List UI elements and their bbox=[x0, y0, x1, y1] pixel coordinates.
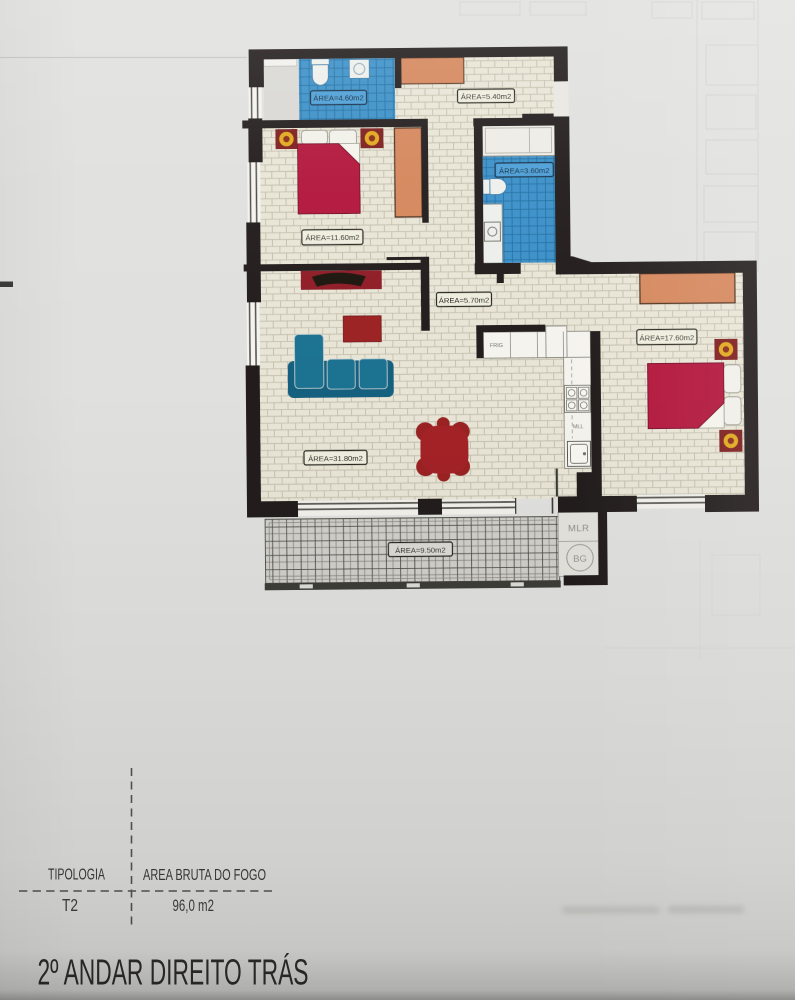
svg-text:ÁREA=4.60m2: ÁREA=4.60m2 bbox=[313, 93, 364, 102]
svg-text:ÁREA=9.50m2: ÁREA=9.50m2 bbox=[395, 545, 446, 554]
svg-text:2º ANDAR DIREITO TRÁS: 2º ANDAR DIREITO TRÁS bbox=[38, 952, 309, 993]
svg-text:ÁREA=11.60m2: ÁREA=11.60m2 bbox=[305, 233, 359, 243]
svg-text:ÁREA=5.70m2: ÁREA=5.70m2 bbox=[439, 295, 490, 304]
svg-text:T2: T2 bbox=[62, 895, 78, 915]
svg-text:TIPOLOGIA: TIPOLOGIA bbox=[48, 867, 105, 884]
svg-text:AREA BRUTA DO FOGO: AREA BRUTA DO FOGO bbox=[143, 867, 266, 884]
svg-text:ÁREA=5.40m2: ÁREA=5.40m2 bbox=[461, 92, 512, 101]
svg-text:BG: BG bbox=[573, 554, 587, 565]
svg-text:ÁREA=17.60m2: ÁREA=17.60m2 bbox=[639, 333, 694, 343]
svg-text:MLR: MLR bbox=[568, 523, 590, 534]
svg-text:MLL: MLL bbox=[573, 424, 584, 430]
svg-text:ÁREA=3.60m2: ÁREA=3.60m2 bbox=[499, 166, 550, 175]
svg-text:FRIG: FRIG bbox=[490, 343, 503, 349]
svg-text:96,0 m2: 96,0 m2 bbox=[173, 896, 215, 915]
svg-text:ÁREA=31.80m2: ÁREA=31.80m2 bbox=[308, 454, 363, 464]
